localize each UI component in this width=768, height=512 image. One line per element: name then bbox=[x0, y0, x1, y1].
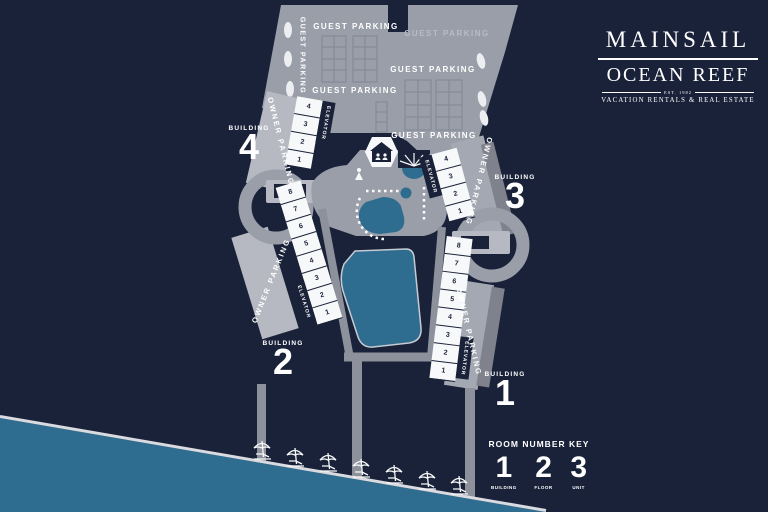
building-1-label: BUILDING 1 bbox=[480, 371, 530, 409]
key-digit: 3 bbox=[570, 453, 587, 483]
key-digit: 1 bbox=[491, 453, 517, 483]
beach-umbrella-icon bbox=[287, 448, 304, 466]
logo-tagline: VACATION RENTALS & REAL ESTATE bbox=[596, 97, 760, 104]
key-entry: 1 BUILDING bbox=[491, 453, 517, 490]
unit-stall: 1 bbox=[429, 361, 457, 382]
established-text: EST. 1982 bbox=[664, 90, 692, 95]
guest-parking-label: GUEST PARKING bbox=[385, 65, 481, 74]
guest-parking-label: GUEST PARKING bbox=[399, 29, 495, 38]
logo-line bbox=[695, 92, 754, 93]
guest-parking-label: GUEST PARKING bbox=[308, 22, 404, 31]
key-digit: 2 bbox=[534, 453, 552, 483]
building-4-label: BUILDING 4 bbox=[224, 125, 274, 163]
key-label: BUILDING bbox=[491, 485, 517, 490]
key-label: FLOOR bbox=[534, 485, 552, 490]
mainsail-ocean-reef-logo: MAINSAIL OCEAN REEF EST. 1982 VACATION R… bbox=[596, 27, 760, 104]
key-entry: 2 FLOOR bbox=[534, 453, 552, 490]
resort-site-map: 4 3 2 1 ELEVATOR 8 7 6 5 4 3 2 1 ELEVATO… bbox=[0, 0, 768, 512]
clubhouse-icon bbox=[365, 137, 398, 167]
building-number: 1 bbox=[480, 378, 530, 409]
room-number-key-title: ROOM NUMBER KEY bbox=[486, 439, 592, 449]
lagoon-pool bbox=[359, 197, 404, 234]
guest-parking-label: GUEST PARKING bbox=[307, 86, 403, 95]
beach-umbrella-icon bbox=[320, 453, 337, 471]
brand-name: MAINSAIL bbox=[596, 27, 760, 53]
established-row: EST. 1982 bbox=[602, 90, 754, 95]
elevator-text: ELEVATOR bbox=[320, 105, 332, 140]
guest-parking-label-vertical: GUEST PARKING bbox=[299, 16, 306, 96]
logo-line bbox=[602, 92, 661, 93]
building-number: 4 bbox=[224, 132, 274, 163]
logo-divider bbox=[598, 58, 758, 60]
beach-umbrella-icon bbox=[419, 471, 436, 489]
property-name: OCEAN REEF bbox=[596, 64, 760, 87]
building-number: 2 bbox=[258, 347, 308, 378]
beach-umbrella-icon bbox=[386, 465, 403, 483]
key-entry: 3 UNIT bbox=[570, 453, 587, 490]
room-number-key: ROOM NUMBER KEY 1 BUILDING 2 FLOOR 3 UNI… bbox=[486, 439, 592, 490]
building-3-label: BUILDING 3 bbox=[490, 174, 540, 212]
key-label: UNIT bbox=[570, 485, 587, 490]
building-number: 3 bbox=[490, 181, 540, 212]
guest-parking-label: GUEST PARKING bbox=[386, 131, 482, 140]
spa-pool bbox=[401, 188, 412, 199]
building-2-label: BUILDING 2 bbox=[258, 340, 308, 378]
main-pool bbox=[341, 249, 421, 347]
